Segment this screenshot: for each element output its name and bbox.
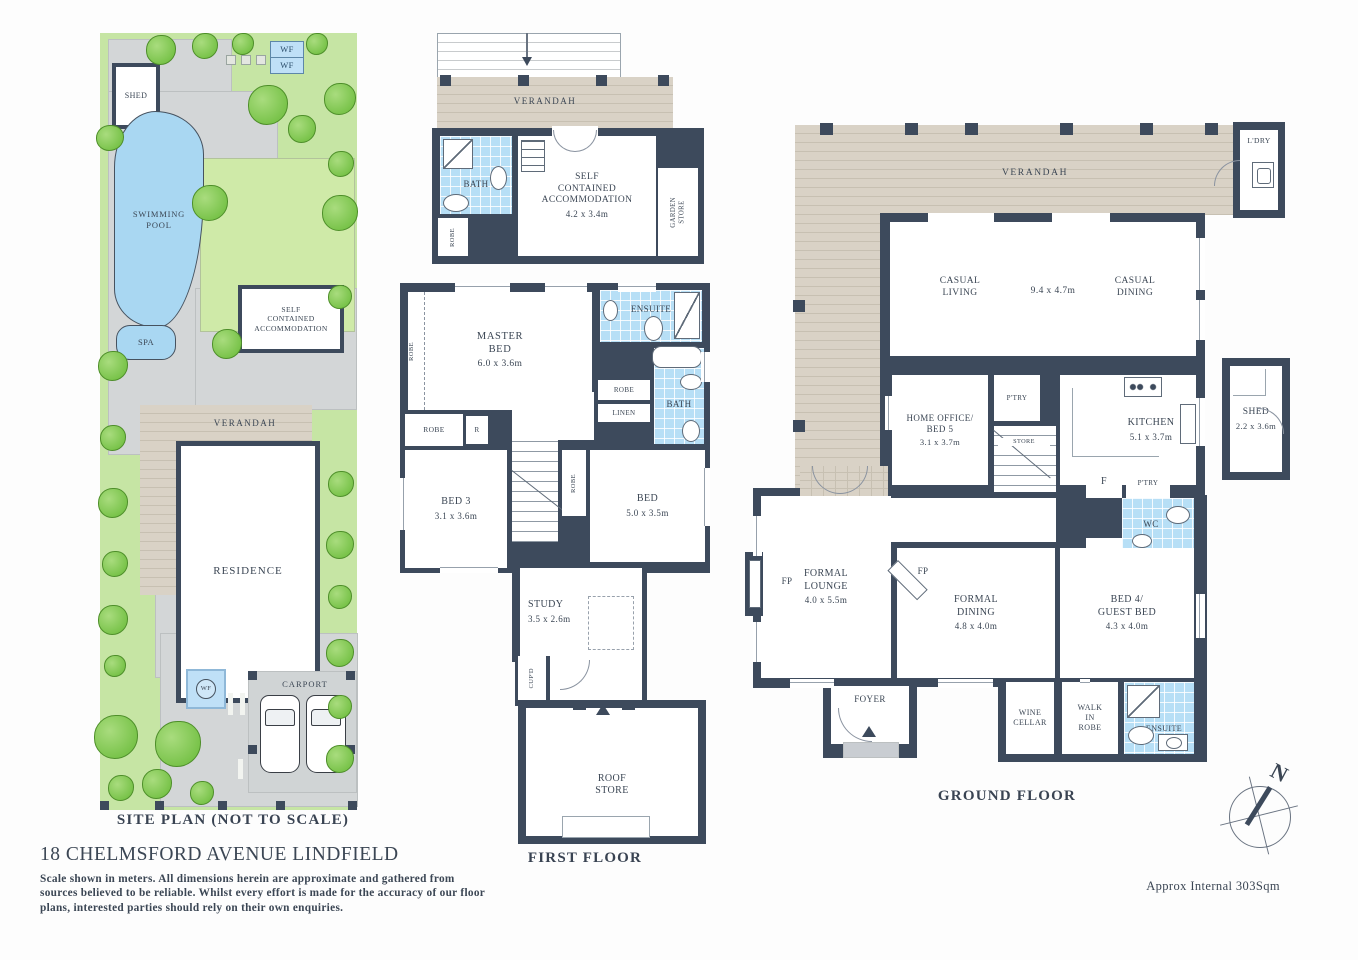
water-feature-1: WF [270, 41, 304, 58]
paver-square [241, 55, 251, 65]
gf-verandah-left [795, 215, 885, 493]
door-opening [928, 213, 994, 223]
ff-garden-store: GARDEN STORE [658, 168, 698, 256]
car-windshield [265, 709, 295, 726]
tree-icon [98, 605, 128, 635]
gf-store-label: STORE [998, 438, 1050, 446]
tree-icon [94, 715, 138, 759]
tree-icon [328, 471, 354, 497]
verandah-post [965, 123, 978, 135]
verandah-post [518, 75, 529, 86]
ff-robe-hall: ROBE [598, 380, 650, 400]
site-residence: RESIDENCE [176, 441, 320, 703]
kitchen-bench [1072, 388, 1159, 457]
paver-square [256, 55, 266, 65]
window [885, 396, 893, 430]
verandah-post [820, 123, 833, 135]
kitchenette-icon [521, 140, 545, 172]
gf-hall [890, 498, 1056, 542]
address-title: 18 CHELMSFORD AVENUE LINDFIELD [40, 843, 500, 867]
gf-formal-lounge: FORMAL LOUNGE 4.0 x 5.5m [761, 496, 891, 678]
tree-icon [102, 551, 128, 577]
verandah-post [596, 75, 607, 86]
fireplace-icon [749, 560, 761, 608]
ff-verandah-label: VERANDAH [470, 96, 620, 107]
tree-icon [306, 33, 328, 55]
sink-icon [1180, 404, 1196, 444]
gf-verandah-label: VERANDAH [955, 168, 1115, 180]
gf-fp-dining-label: FP [908, 566, 938, 577]
ff-cupd: CUP'D [518, 656, 546, 700]
toilet-icon [644, 316, 663, 341]
gf-fridge: F [1086, 466, 1122, 498]
carport-post [248, 745, 257, 754]
window [701, 468, 710, 526]
verandah-post [440, 75, 451, 86]
robe-zigzag [424, 292, 425, 410]
gf-walk-in-robe: WALK IN ROBE [1062, 682, 1118, 754]
window [1196, 300, 1205, 340]
compass-north-label: N [1266, 758, 1293, 789]
shower-icon [674, 292, 700, 339]
tree-icon [326, 531, 354, 559]
ff-bed: BED 5.0 x 3.5m [590, 450, 705, 562]
ff-r-cupboard: R [466, 416, 488, 444]
arrow-up-icon [596, 704, 610, 715]
approx-internal-label: Approx Internal 303Sqm [1050, 879, 1280, 894]
compass-icon: N [1215, 758, 1305, 852]
tree-icon [288, 115, 316, 143]
window [753, 516, 762, 556]
shower-icon [443, 139, 473, 169]
verandah-post [1140, 123, 1153, 135]
cooktop-icon [1124, 377, 1162, 397]
window [545, 283, 587, 292]
fence-post [276, 801, 285, 810]
door-opening [1052, 213, 1110, 223]
window [400, 478, 409, 530]
gf-casual-living-label: CASUAL LIVING [920, 276, 1000, 299]
carport-label: CARPORT [260, 679, 350, 689]
basin-icon [603, 300, 618, 321]
basin-icon [1132, 534, 1152, 548]
gf-ptry1: P'TRY [994, 375, 1040, 421]
window [790, 679, 834, 688]
gf-casual-dining-label: CASUAL DINING [1095, 276, 1175, 299]
basin-icon [490, 166, 507, 190]
site-plan: VERANDAH SHED WF WF SWIMMING POOL SPA SE… [100, 33, 357, 810]
window [455, 283, 510, 292]
ff-robe-stairs: ROBE [562, 450, 586, 516]
gf-fp-lounge-label: FP [772, 576, 802, 587]
shower-icon [1127, 685, 1160, 718]
arrow-down-icon [522, 57, 532, 66]
carport-post [248, 671, 257, 680]
entry-arrow-icon [862, 726, 876, 737]
verandah-post [1060, 123, 1073, 135]
fence-post [218, 801, 227, 810]
trough-bowl-icon [1257, 168, 1271, 184]
fence-post [100, 801, 109, 810]
gf-home-office: HOME OFFICE/ BED 5 3.1 x 3.7m [892, 375, 988, 485]
window [753, 622, 762, 662]
site-verandah-deck-side [140, 443, 180, 595]
toilet-icon [1128, 726, 1154, 745]
verandah-post [793, 300, 805, 312]
basin-icon [682, 420, 700, 442]
window [1196, 398, 1205, 446]
ff-roof-steps [437, 33, 621, 79]
entry-step [843, 742, 899, 758]
window [618, 283, 656, 292]
floorplan-page: VERANDAH SHED WF WF SWIMMING POOL SPA SE… [0, 0, 1358, 960]
staircase [994, 426, 1056, 492]
verandah-post [658, 75, 669, 86]
site-plan-title: SITE PLAN (NOT TO SCALE) [105, 812, 361, 829]
ff-roof-arrow-line [526, 33, 528, 57]
window [1080, 679, 1090, 688]
gf-bed4: BED 4/ GUEST BED 4.3 x 4.0m [1060, 548, 1194, 678]
tree-icon [232, 33, 254, 55]
toilet-icon [443, 194, 469, 212]
window [701, 352, 710, 382]
carport-post [346, 671, 355, 680]
toilet-icon [1166, 506, 1190, 524]
disclaimer-text: Scale shown in meters. All dimensions he… [40, 872, 510, 915]
gf-casual-dims-label: 9.4 x 4.7m [1013, 286, 1093, 298]
wall-post [573, 700, 586, 710]
bathtub-icon [652, 346, 702, 368]
tree-icon [324, 83, 356, 115]
ff-robe-master-label: ROBE [408, 324, 416, 379]
tree-icon [108, 775, 134, 801]
fence-post [348, 801, 357, 810]
wall-post [622, 700, 635, 710]
verandah-post [1205, 123, 1218, 135]
verandah-post [793, 420, 805, 432]
ff-linen: LINEN [598, 404, 650, 422]
skylight-dashed [588, 596, 634, 650]
ff-robe-sca: ROBE [438, 218, 468, 256]
shed-step-line [1233, 369, 1266, 396]
gf-wine-cellar: WINE CELLAR [1006, 682, 1054, 754]
basin-icon [1166, 737, 1182, 749]
window [1196, 594, 1205, 638]
window [1196, 238, 1205, 290]
window [440, 564, 498, 573]
ff-bed3: BED 3 3.1 x 3.6m [405, 450, 507, 568]
car-icon [260, 695, 300, 773]
tree-icon [104, 655, 126, 677]
water-feature-2: WF [270, 57, 304, 74]
first-floor-title: FIRST FLOOR [495, 850, 675, 867]
fence-post [155, 801, 164, 810]
roof-hatch [562, 816, 650, 838]
gf-ptry2: P'TRY [1126, 466, 1170, 500]
spa: SPA [116, 325, 176, 360]
paver-square [226, 55, 236, 65]
window [938, 679, 993, 688]
verandah-post [905, 123, 918, 135]
tree-icon [328, 585, 352, 609]
tree-icon [248, 85, 288, 125]
ground-floor-title: GROUND FLOOR [917, 788, 1097, 805]
water-feature-3: WF [186, 669, 226, 709]
tree-icon [98, 488, 128, 518]
site-verandah-label: VERANDAH [185, 418, 305, 429]
toilet-icon [680, 374, 702, 390]
ff-robe-bed3: ROBE [405, 414, 463, 446]
